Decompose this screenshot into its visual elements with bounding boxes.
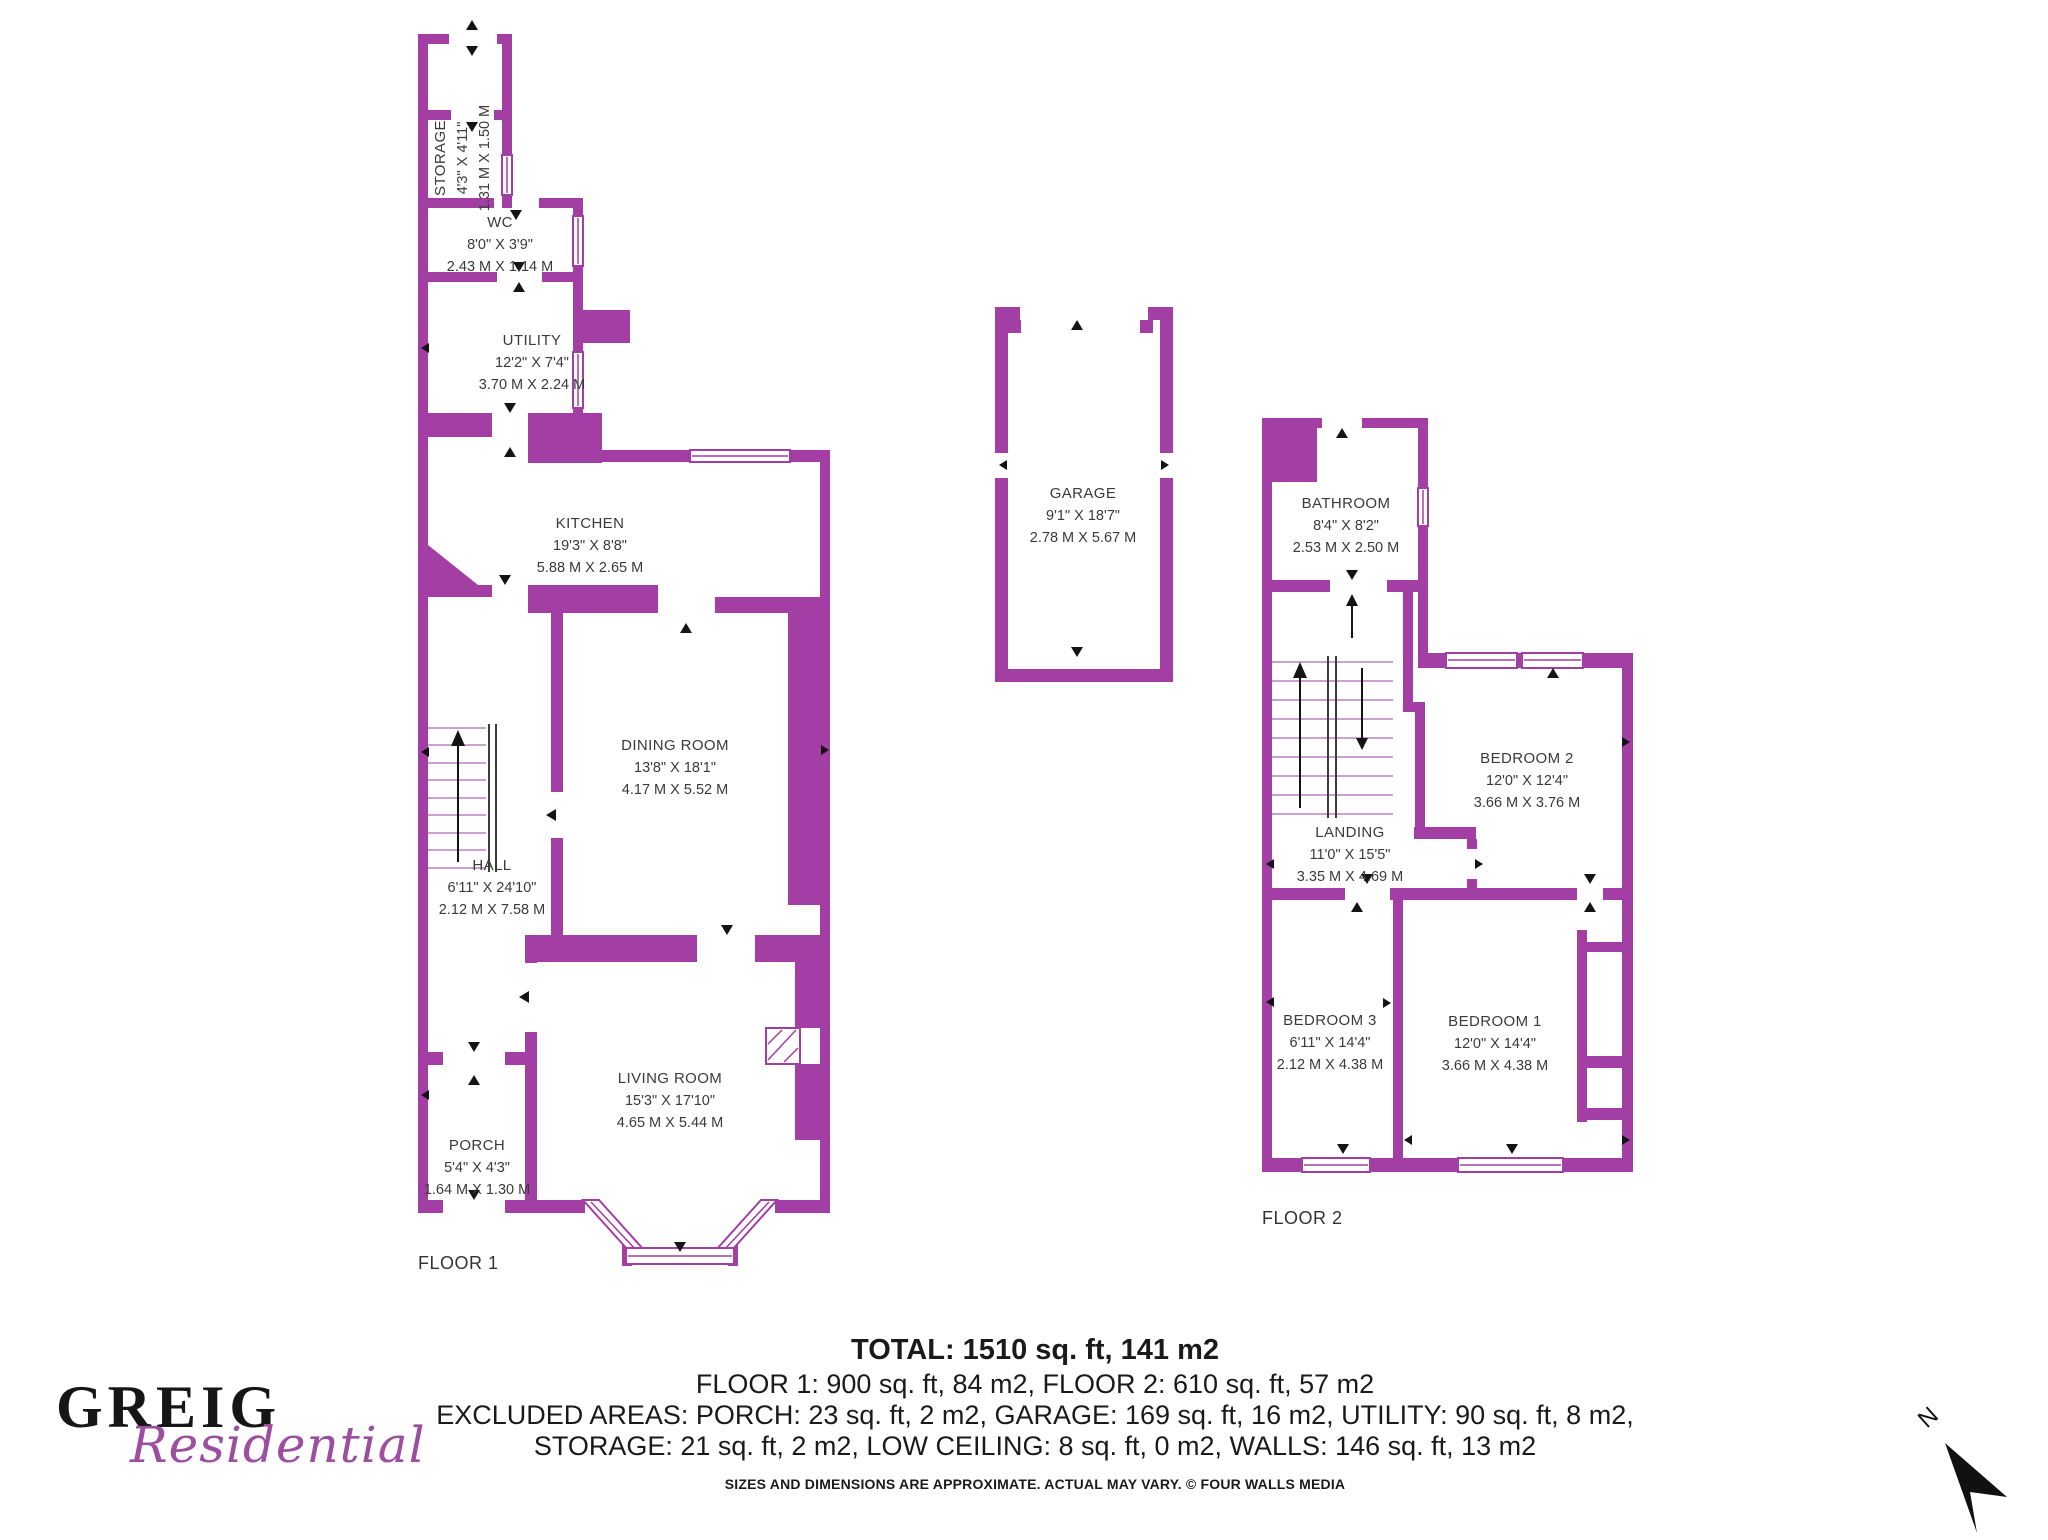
room-dims-metric: 3.66 M X 3.76 M xyxy=(1474,792,1580,814)
room-label-kitchen: KITCHEN 19'3" X 8'8" 5.88 M X 2.65 M xyxy=(537,513,643,579)
floor1-label: FLOOR 1 xyxy=(418,1253,499,1274)
room-name: KITCHEN xyxy=(537,513,643,535)
fireplace-hatch xyxy=(766,1028,800,1064)
room-dims-imperial: 15'3" X 17'10" xyxy=(617,1090,723,1112)
room-label-hall: HALL 6'11" X 24'10" 2.12 M X 7.58 M xyxy=(439,855,545,921)
room-dims-metric: 1.31 M X 1.50 M xyxy=(474,105,496,211)
room-dims-metric: 3.35 M X 4.69 M xyxy=(1297,866,1403,888)
room-dims-metric: 1.64 M X 1.30 M xyxy=(424,1179,530,1201)
floorplan-page: { "branding": { "brand_name": "GREIG", "… xyxy=(0,0,2048,1536)
room-dims-metric: 2.12 M X 4.38 M xyxy=(1277,1054,1383,1076)
floor2-label: FLOOR 2 xyxy=(1262,1208,1343,1229)
room-label-living-room: LIVING ROOM 15'3" X 17'10" 4.65 M X 5.44… xyxy=(617,1068,723,1134)
room-dims-imperial: 8'0" X 3'9" xyxy=(447,234,553,256)
room-name: UTILITY xyxy=(479,330,585,352)
room-dims-metric: 2.12 M X 7.58 M xyxy=(439,899,545,921)
total-area-text: TOTAL: 1510 sq. ft, 141 m2 xyxy=(0,1332,2048,1369)
room-label-landing: LANDING 11'0" X 15'5" 3.35 M X 4.69 M xyxy=(1297,822,1403,888)
room-dims-imperial: 11'0" X 15'5" xyxy=(1297,844,1403,866)
room-label-porch: PORCH 5'4" X 4'3" 1.64 M X 1.30 M xyxy=(424,1135,530,1201)
room-dims-imperial: 19'3" X 8'8" xyxy=(537,535,643,557)
room-name: LIVING ROOM xyxy=(617,1068,723,1090)
room-dims-imperial: 6'11" X 14'4" xyxy=(1277,1032,1383,1054)
room-dims-imperial: 13'8" X 18'1" xyxy=(621,757,729,779)
room-label-bedroom-3: BEDROOM 3 6'11" X 14'4" 2.12 M X 4.38 M xyxy=(1277,1010,1383,1076)
room-label-storage: STORAGE 4'3" X 4'11" 1.31 M X 1.50 M xyxy=(430,105,496,211)
room-name: BEDROOM 1 xyxy=(1442,1011,1548,1033)
stairs-floor2-icon xyxy=(1272,594,1393,818)
room-dims-metric: 4.65 M X 5.44 M xyxy=(617,1112,723,1134)
room-dims-imperial: 9'1" X 18'7" xyxy=(1030,505,1136,527)
room-dims-imperial: 5'4" X 4'3" xyxy=(424,1157,530,1179)
room-dims-imperial: 8'4" X 8'2" xyxy=(1293,515,1399,537)
room-dims-metric: 3.70 M X 2.24 M xyxy=(479,374,585,396)
bay-window xyxy=(583,1200,777,1264)
stairs-floor1-icon xyxy=(428,724,496,872)
room-label-garage: GARAGE 9'1" X 18'7" 2.78 M X 5.67 M xyxy=(1030,483,1136,549)
room-label-bedroom-2: BEDROOM 2 12'0" X 12'4" 3.66 M X 3.76 M xyxy=(1474,748,1580,814)
room-dims-metric: 2.53 M X 2.50 M xyxy=(1293,537,1399,559)
room-label-dining-room: DINING ROOM 13'8" X 18'1" 4.17 M X 5.52 … xyxy=(621,735,729,801)
room-name: BEDROOM 3 xyxy=(1277,1010,1383,1032)
room-dims-metric: 3.66 M X 4.38 M xyxy=(1442,1055,1548,1077)
room-name: PORCH xyxy=(424,1135,530,1157)
room-label-bathroom: BATHROOM 8'4" X 8'2" 2.53 M X 2.50 M xyxy=(1293,493,1399,559)
compass: N xyxy=(1900,1380,2040,1540)
floorplan-graphics xyxy=(0,0,2048,1536)
agency-logo-tagline: Residential xyxy=(130,1416,426,1474)
room-dims-metric: 5.88 M X 2.65 M xyxy=(537,557,643,579)
room-dims-imperial: 6'11" X 24'10" xyxy=(439,877,545,899)
room-name: STORAGE xyxy=(430,105,452,211)
room-dims-imperial: 4'3" X 4'11" xyxy=(452,105,474,211)
room-name: WC xyxy=(447,212,553,234)
north-label: N xyxy=(1913,1402,1945,1434)
room-name: GARAGE xyxy=(1030,483,1136,505)
room-label-bedroom-1: BEDROOM 1 12'0" X 14'4" 3.66 M X 4.38 M xyxy=(1442,1011,1548,1077)
room-name: LANDING xyxy=(1297,822,1403,844)
room-name: DINING ROOM xyxy=(621,735,729,757)
room-name: HALL xyxy=(439,855,545,877)
agency-logo: GREIG Residential xyxy=(56,1378,476,1508)
room-dims-metric: 2.43 M X 1.14 M xyxy=(447,256,553,278)
room-label-utility: UTILITY 12'2" X 7'4" 3.70 M X 2.24 M xyxy=(479,330,585,396)
room-name: BATHROOM xyxy=(1293,493,1399,515)
room-dims-imperial: 12'0" X 12'4" xyxy=(1474,770,1580,792)
room-dims-metric: 4.17 M X 5.52 M xyxy=(621,779,729,801)
room-dims-metric: 2.78 M X 5.67 M xyxy=(1030,527,1136,549)
room-name: BEDROOM 2 xyxy=(1474,748,1580,770)
room-dims-imperial: 12'2" X 7'4" xyxy=(479,352,585,374)
room-dims-imperial: 12'0" X 14'4" xyxy=(1442,1033,1548,1055)
room-label-wc: WC 8'0" X 3'9" 2.43 M X 1.14 M xyxy=(447,212,553,278)
